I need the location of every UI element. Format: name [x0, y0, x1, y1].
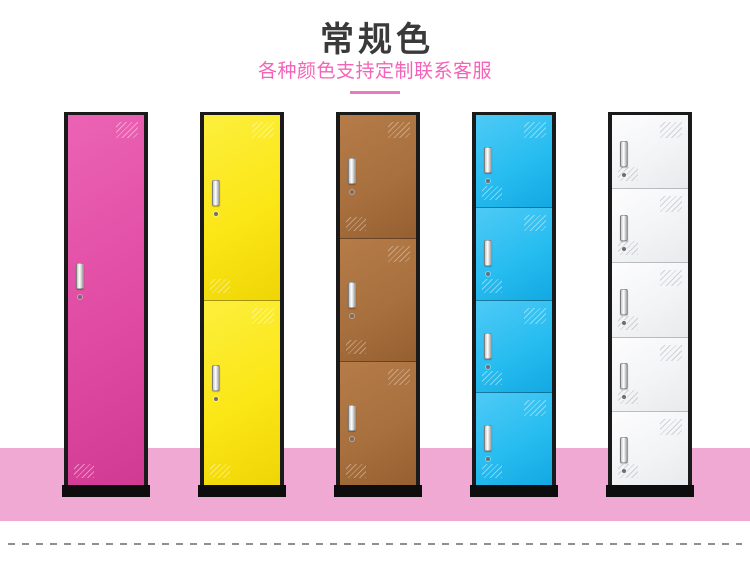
door-handle — [212, 365, 220, 391]
keyhole — [350, 314, 354, 318]
shine-mark — [116, 122, 138, 138]
shine-mark — [388, 369, 410, 385]
keyhole — [214, 397, 218, 401]
shine-mark — [346, 340, 366, 354]
shine-mark — [660, 196, 682, 212]
dashed-separator — [8, 543, 742, 545]
keyhole — [622, 247, 626, 251]
locker-white — [608, 112, 692, 497]
shine-mark — [482, 371, 502, 385]
keyhole — [622, 173, 626, 177]
shine-mark — [74, 464, 94, 478]
door-handle — [620, 289, 628, 315]
keyhole — [622, 321, 626, 325]
shine-mark — [618, 464, 638, 478]
product-color-banner: 常规色 各种颜色支持定制联系客服 — [0, 0, 750, 561]
shine-mark — [346, 217, 366, 231]
locker-door — [476, 115, 552, 207]
shine-mark — [388, 122, 410, 138]
locker-door — [612, 262, 688, 336]
door-handle — [484, 425, 492, 451]
locker-frame — [336, 112, 420, 485]
shine-mark — [524, 400, 546, 416]
door-handle — [76, 263, 84, 289]
locker-door — [476, 300, 552, 393]
keyhole — [350, 437, 354, 441]
keyhole — [78, 295, 82, 299]
door-handle — [348, 158, 356, 184]
shine-mark — [660, 345, 682, 361]
locker-base — [470, 485, 558, 497]
locker-base — [198, 485, 286, 497]
shine-mark — [660, 419, 682, 435]
locker-brown — [336, 112, 420, 497]
keyhole — [214, 212, 218, 216]
door-handle — [620, 215, 628, 241]
locker-frame — [472, 112, 556, 485]
door-handle — [484, 240, 492, 266]
shine-mark — [524, 122, 546, 138]
shine-mark — [482, 279, 502, 293]
shine-mark — [618, 241, 638, 255]
shine-mark — [618, 390, 638, 404]
door-handle — [620, 141, 628, 167]
lockers-row — [64, 112, 692, 497]
shine-mark — [524, 308, 546, 324]
door-handle — [348, 282, 356, 308]
locker-frame — [64, 112, 148, 485]
locker-pink — [64, 112, 148, 497]
shine-mark — [252, 308, 274, 324]
keyhole — [350, 190, 354, 194]
shine-mark — [482, 186, 502, 200]
locker-door — [340, 361, 416, 485]
door-handle — [348, 405, 356, 431]
locker-door — [612, 411, 688, 485]
keyhole — [486, 179, 490, 183]
page-title: 常规色 — [0, 12, 750, 61]
locker-door — [612, 115, 688, 188]
locker-door — [476, 207, 552, 300]
locker-base — [606, 485, 694, 497]
locker-door — [340, 115, 416, 238]
locker-door — [612, 188, 688, 262]
page-subtitle: 各种颜色支持定制联系客服 — [0, 56, 750, 83]
shine-mark — [346, 464, 366, 478]
locker-frame — [200, 112, 284, 485]
locker-blue — [472, 112, 556, 497]
locker-frame — [608, 112, 692, 485]
shine-mark — [252, 122, 274, 138]
shine-mark — [210, 464, 230, 478]
locker-door — [476, 392, 552, 485]
locker-door — [68, 115, 144, 485]
keyhole — [486, 365, 490, 369]
shine-mark — [660, 122, 682, 138]
shine-mark — [660, 270, 682, 286]
shine-mark — [482, 464, 502, 478]
shine-mark — [210, 279, 230, 293]
shine-mark — [388, 246, 410, 262]
locker-yellow — [200, 112, 284, 497]
keyhole — [486, 457, 490, 461]
locker-door — [612, 337, 688, 411]
door-handle — [620, 437, 628, 463]
locker-base — [62, 485, 150, 497]
locker-base — [334, 485, 422, 497]
title-divider — [350, 91, 400, 94]
door-handle — [212, 180, 220, 206]
shine-mark — [524, 215, 546, 231]
door-handle — [484, 147, 492, 173]
shine-mark — [618, 167, 638, 181]
locker-door — [204, 300, 280, 486]
keyhole — [486, 272, 490, 276]
door-handle — [484, 333, 492, 359]
locker-door — [204, 115, 280, 300]
door-handle — [620, 363, 628, 389]
shine-mark — [618, 316, 638, 330]
locker-door — [340, 238, 416, 362]
